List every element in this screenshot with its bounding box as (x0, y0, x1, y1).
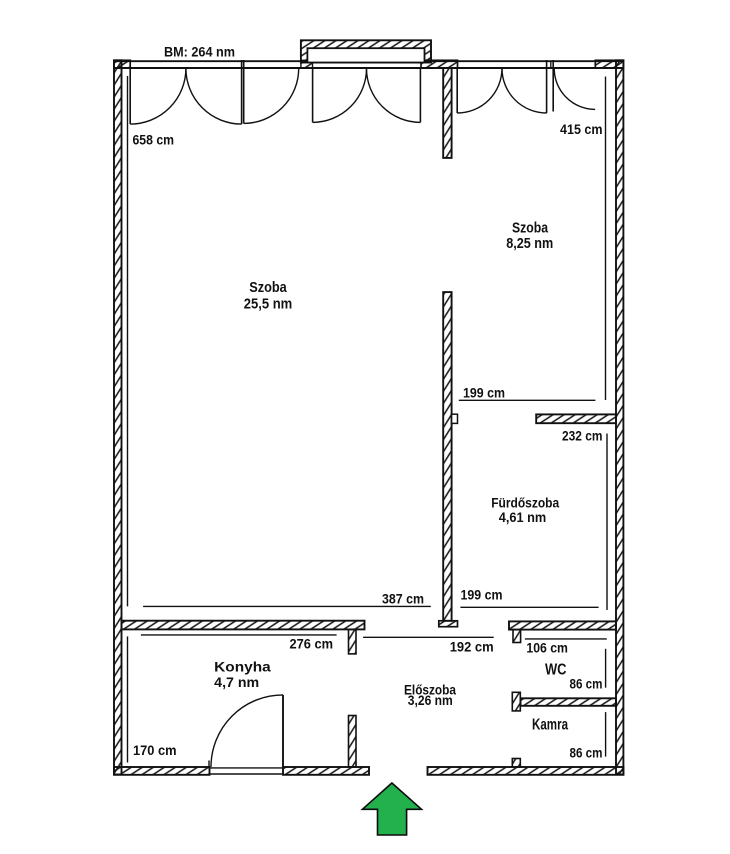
svg-text:WC: WC (545, 662, 567, 679)
svg-text:276 cm: 276 cm (290, 636, 334, 652)
svg-text:199 cm: 199 cm (463, 385, 505, 401)
svg-text:106 cm: 106 cm (526, 640, 568, 656)
svg-text:Konyha: Konyha (214, 659, 271, 674)
svg-text:199 cm: 199 cm (461, 587, 503, 603)
svg-text:25,5 nm: 25,5 nm (244, 296, 293, 313)
svg-text:Szoba: Szoba (512, 219, 549, 236)
svg-text:BM: 264 nm: BM: 264 nm (164, 44, 235, 60)
svg-text:Szoba: Szoba (249, 279, 287, 296)
svg-text:4,61 nm: 4,61 nm (499, 509, 547, 525)
svg-text:658 cm: 658 cm (133, 132, 175, 148)
svg-text:Kamra: Kamra (532, 716, 568, 733)
svg-text:415 cm: 415 cm (560, 121, 603, 137)
svg-text:232 cm: 232 cm (562, 428, 603, 444)
svg-text:170 cm: 170 cm (133, 742, 177, 758)
svg-text:86 cm: 86 cm (570, 745, 603, 761)
svg-text:3,26 nm: 3,26 nm (408, 693, 453, 708)
svg-text:4,7 nm: 4,7 nm (214, 675, 259, 690)
svg-text:86 cm: 86 cm (570, 676, 603, 692)
svg-text:387 cm: 387 cm (382, 591, 424, 607)
svg-text:8,25 nm: 8,25 nm (506, 235, 553, 252)
svg-text:192 cm: 192 cm (450, 639, 494, 655)
